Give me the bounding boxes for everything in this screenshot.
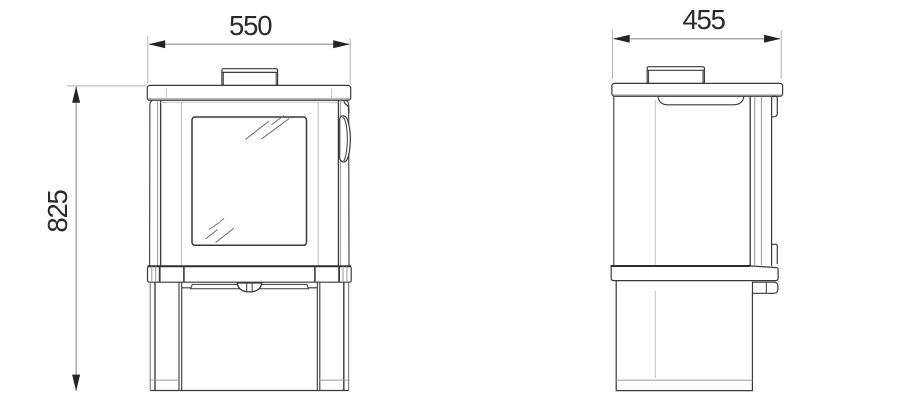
svg-text:825: 825: [42, 189, 73, 232]
svg-text:550: 550: [229, 10, 272, 41]
svg-text:455: 455: [682, 4, 725, 35]
